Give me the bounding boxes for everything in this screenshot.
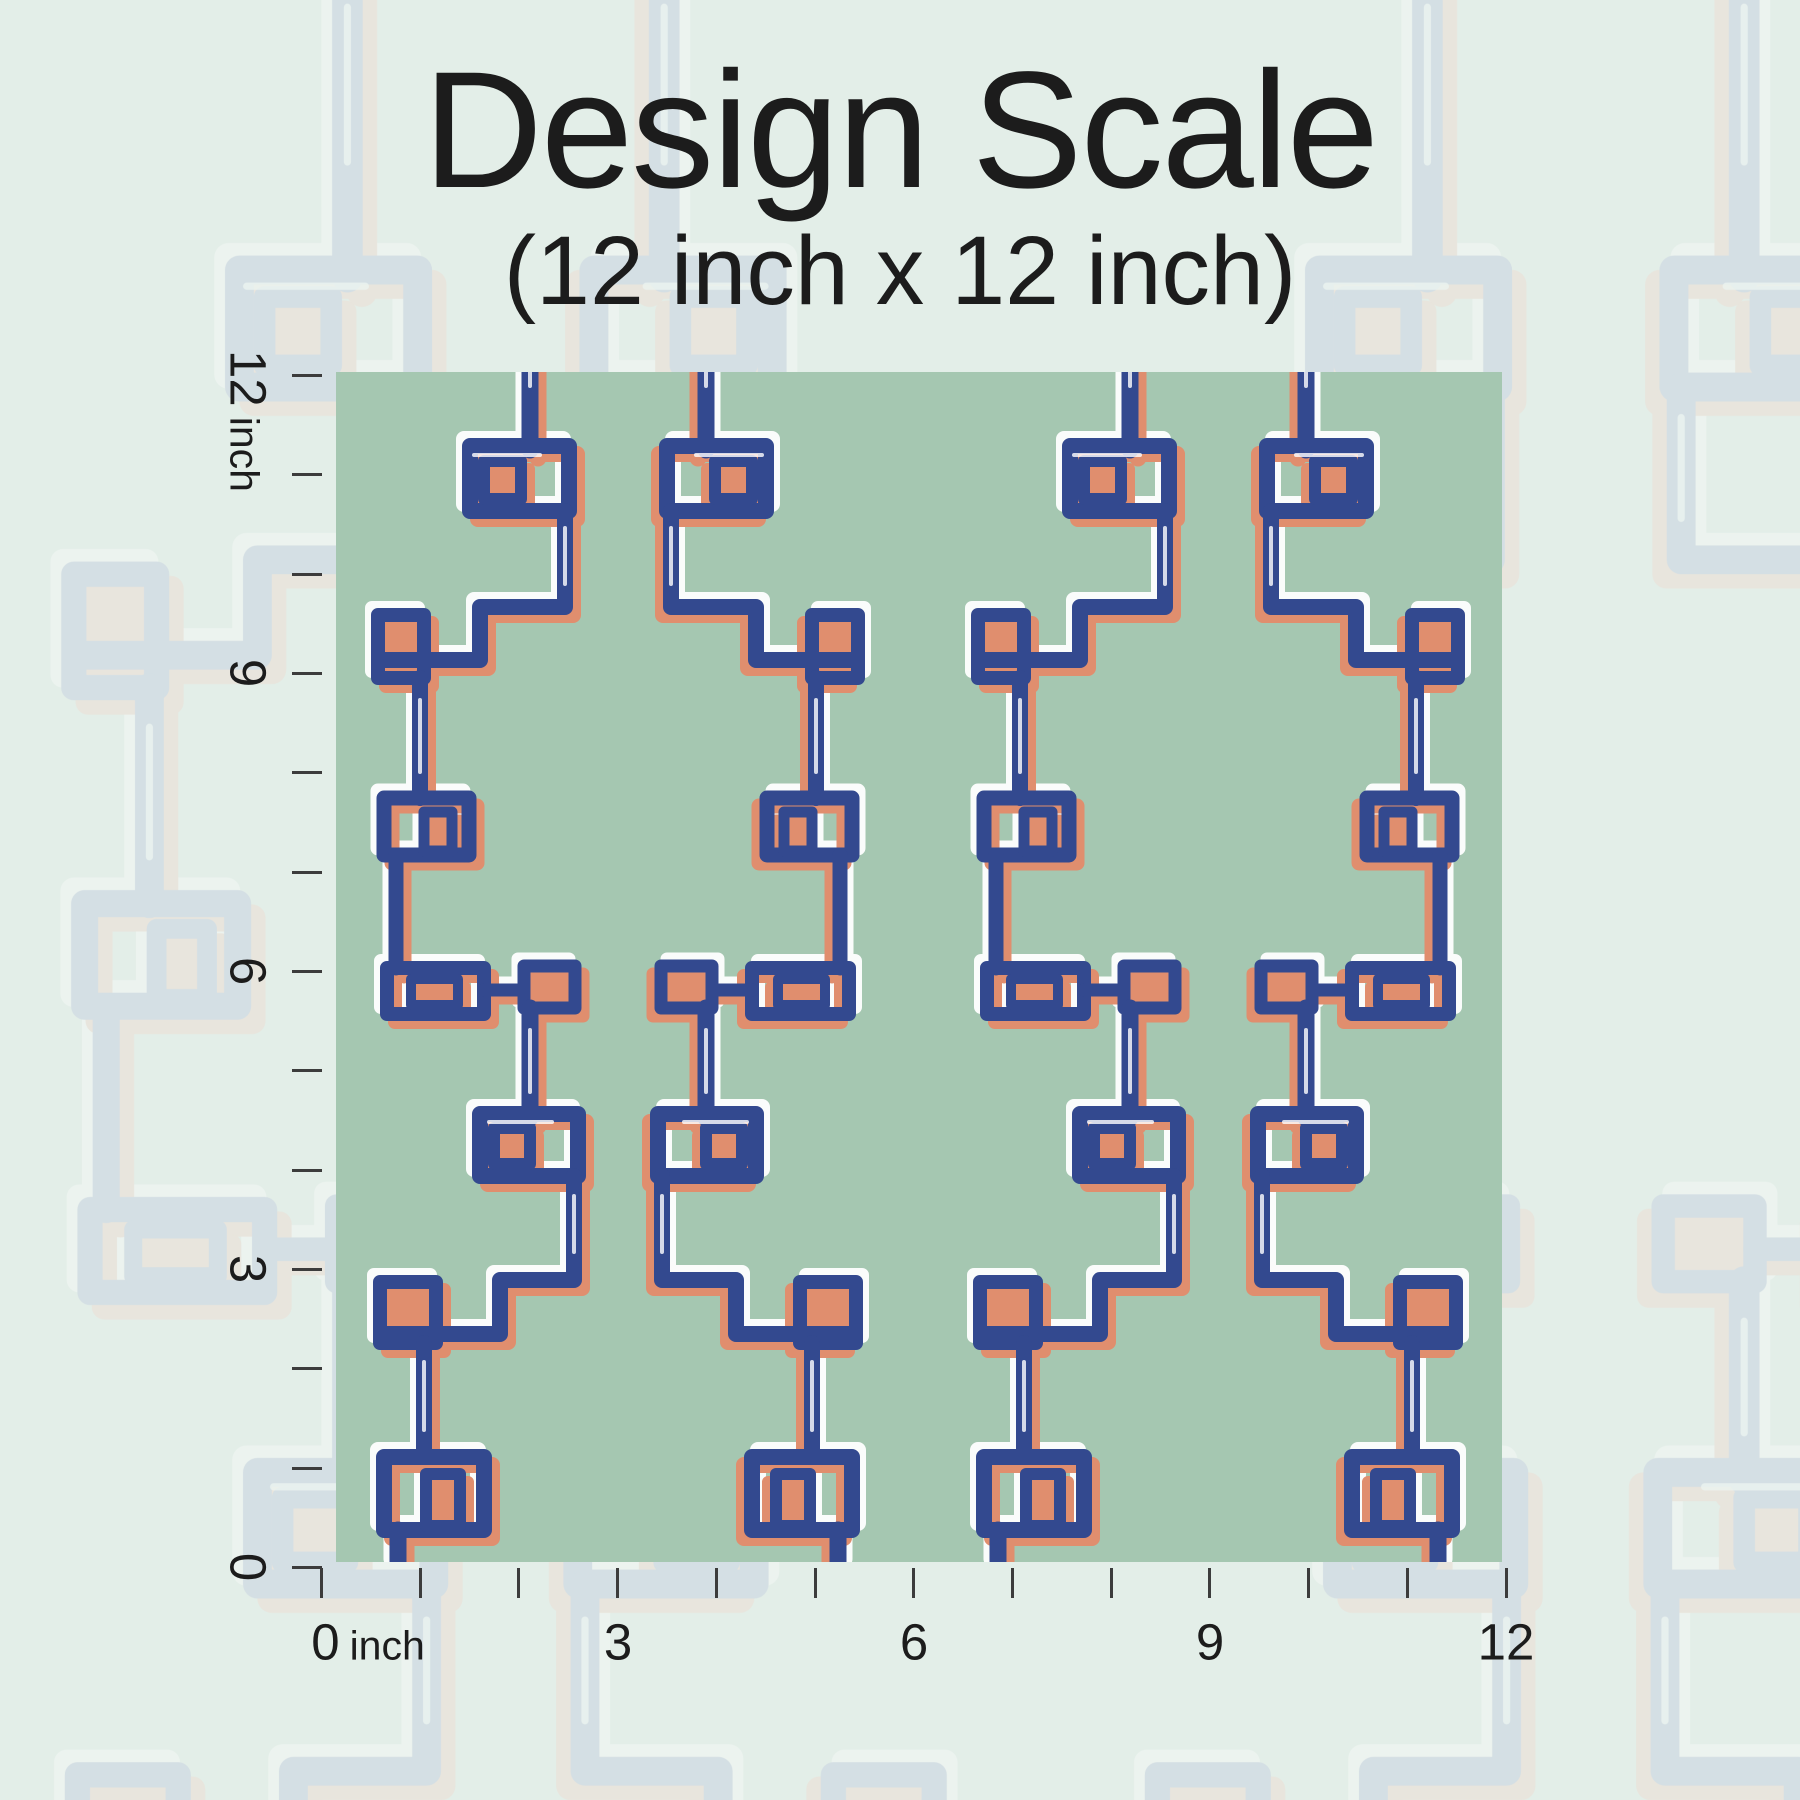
hruler-tick bbox=[1406, 1568, 1409, 1598]
unit-label: inch bbox=[222, 417, 268, 492]
vruler-tick bbox=[292, 1268, 322, 1271]
hruler-tick bbox=[1110, 1568, 1113, 1598]
vruler-tick bbox=[292, 573, 322, 576]
vruler-tick bbox=[292, 1367, 322, 1370]
hruler-tick bbox=[1208, 1568, 1211, 1598]
vruler-tick bbox=[292, 1566, 322, 1569]
vruler-tick bbox=[292, 374, 322, 377]
vruler-tick bbox=[292, 1467, 322, 1470]
hruler-tick bbox=[715, 1568, 718, 1598]
hruler-tick bbox=[1011, 1568, 1014, 1598]
vruler-tick bbox=[292, 970, 322, 973]
vruler-tick bbox=[292, 473, 322, 476]
hruler-tick bbox=[912, 1568, 915, 1598]
hruler-tick bbox=[814, 1568, 817, 1598]
vruler-tick bbox=[292, 871, 322, 874]
hruler-tick bbox=[1505, 1568, 1508, 1598]
page-title: Design Scale bbox=[0, 44, 1800, 218]
hruler-tick bbox=[616, 1568, 619, 1598]
vruler-tick bbox=[292, 1069, 322, 1072]
hruler-tick bbox=[517, 1568, 520, 1598]
design-swatch bbox=[336, 372, 1502, 1562]
vruler-tick bbox=[292, 672, 322, 675]
vruler-tick bbox=[292, 771, 322, 774]
hruler-tick bbox=[419, 1568, 422, 1598]
swatch-size-subtitle: (12 inch x 12 inch) bbox=[0, 220, 1800, 322]
swatch-background bbox=[336, 372, 1502, 1562]
hruler-tick bbox=[320, 1568, 323, 1598]
vruler-tick bbox=[292, 1169, 322, 1172]
unit-label: inch bbox=[350, 1623, 425, 1669]
hruler-tick bbox=[1307, 1568, 1310, 1598]
